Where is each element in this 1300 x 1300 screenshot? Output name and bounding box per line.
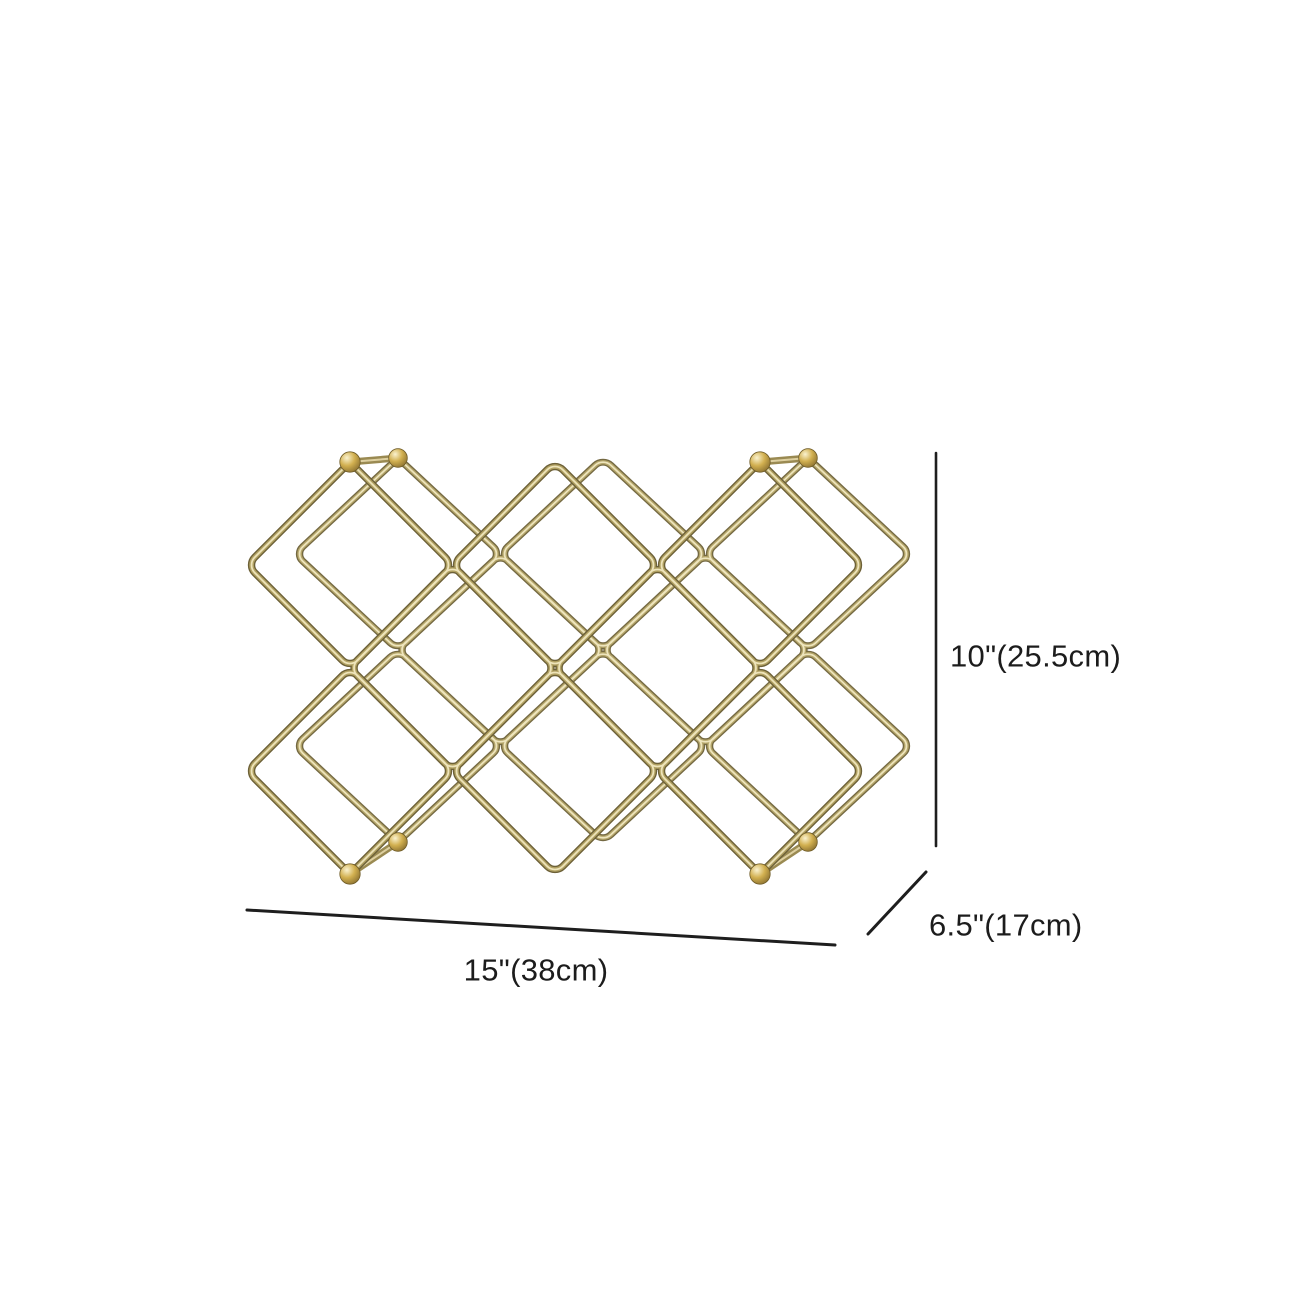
depth-dimension-line [868, 872, 926, 934]
wine-rack-front-layer [247, 462, 863, 874]
depth-dimension-label: 6.5"(17cm) [929, 910, 1083, 941]
width-dimension-label: 15"(38cm) [464, 955, 609, 986]
product-dimension-diagram: 10"(25.5cm) 15"(38cm) 6.5"(17cm) [0, 0, 1300, 1300]
height-dimension-label: 10"(25.5cm) [950, 641, 1121, 672]
width-dimension-line [247, 910, 835, 945]
